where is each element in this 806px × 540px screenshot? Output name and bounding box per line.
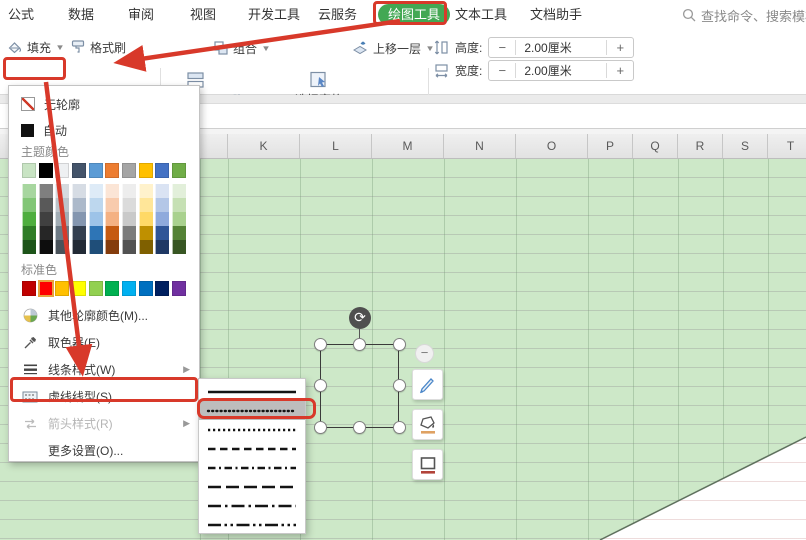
color-swatch[interactable] — [55, 198, 69, 212]
color-swatch[interactable] — [72, 281, 86, 296]
color-swatch[interactable] — [172, 281, 186, 296]
grid-column-line — [633, 159, 634, 540]
menu-item-arrow-style: 箭头样式(R)▶ — [9, 410, 199, 437]
menu-item-no-outline[interactable]: 无轮廓 — [9, 91, 199, 117]
menu-item-label: 取色器(E) — [48, 334, 100, 351]
tab-review[interactable]: 审阅 — [128, 0, 154, 30]
color-swatch[interactable] — [89, 212, 103, 226]
color-swatch[interactable] — [155, 212, 169, 226]
format-painter-icon — [70, 39, 86, 55]
format-painter-button[interactable]: 格式刷 — [70, 37, 126, 57]
tab-data[interactable]: 数据 — [68, 0, 94, 30]
column-header-N[interactable]: N — [444, 134, 516, 158]
height-increment-button[interactable]: + — [606, 40, 633, 55]
color-swatch[interactable] — [122, 281, 136, 296]
color-swatch[interactable] — [22, 163, 36, 178]
width-decrement-button[interactable]: − — [489, 63, 516, 78]
dashed-rect-icon — [21, 391, 39, 403]
width-increment-button[interactable]: + — [606, 63, 633, 78]
color-swatch[interactable] — [105, 163, 119, 178]
column-header-M[interactable]: M — [372, 134, 444, 158]
menu-item-more-outline-colors[interactable]: 其他轮廓颜色(M)... — [9, 302, 199, 329]
brush-icon — [417, 374, 439, 396]
color-swatch[interactable] — [155, 281, 169, 296]
chevron-down-icon: ▼ — [261, 44, 271, 53]
selection-pane-icon — [308, 71, 330, 89]
color-swatch[interactable] — [172, 198, 186, 212]
color-swatch[interactable] — [139, 184, 153, 198]
dash-style-round-dot[interactable] — [199, 401, 305, 420]
color-swatch[interactable] — [122, 163, 136, 178]
tab-cloud-service[interactable]: 云服务 — [318, 0, 357, 30]
bring-forward-button[interactable]: 上移一层▼ — [352, 38, 434, 58]
quick-style-brush-button[interactable] — [412, 369, 443, 400]
color-swatch[interactable] — [89, 163, 103, 178]
color-swatch[interactable] — [55, 184, 69, 198]
color-swatch[interactable] — [172, 163, 186, 178]
standard-colors-row — [9, 281, 199, 296]
color-swatch[interactable] — [122, 184, 136, 198]
column-header-Q[interactable]: Q — [633, 134, 678, 158]
menu-item-label: 其他轮廓颜色(M)... — [48, 307, 148, 324]
arrows-icon — [21, 418, 39, 430]
selection-handle[interactable] — [393, 421, 406, 434]
color-swatch[interactable] — [55, 212, 69, 226]
submenu-arrow-icon: ▶ — [183, 418, 190, 429]
color-swatch[interactable] — [39, 163, 53, 178]
dash-style-long-dash-dot-dot[interactable] — [199, 515, 305, 534]
color-swatch[interactable] — [22, 212, 36, 226]
color-swatch[interactable] — [155, 184, 169, 198]
color-swatch[interactable] — [172, 184, 186, 198]
grid-column-line — [516, 159, 517, 540]
color-swatch[interactable] — [72, 226, 86, 240]
width-label: 宽度: — [455, 62, 482, 79]
dash-style-long-dash-dot[interactable] — [199, 496, 305, 515]
color-swatch[interactable] — [155, 226, 169, 240]
submenu-arrow-icon: ▶ — [183, 364, 190, 375]
column-header-K[interactable]: K — [228, 134, 300, 158]
quick-outline-button[interactable] — [412, 449, 443, 480]
ribbon-tab-bar: 公式数据审阅视图开发工具云服务绘图工具文本工具文档助手 查找命令、搜索模板 — [0, 0, 806, 30]
column-header-R[interactable]: R — [678, 134, 723, 158]
color-swatch[interactable] — [39, 198, 53, 212]
color-swatch[interactable] — [139, 212, 153, 226]
color-swatch[interactable] — [139, 226, 153, 240]
color-swatch[interactable] — [105, 240, 119, 254]
dash-style-submenu — [198, 378, 306, 534]
shape-outline-icon — [417, 454, 439, 476]
height-value[interactable]: 2.00厘米 — [516, 39, 606, 56]
search-placeholder: 查找命令、搜索模板 — [701, 6, 806, 25]
theme-colors-tint-grid — [9, 184, 199, 254]
color-swatch[interactable] — [22, 240, 36, 254]
color-swatch[interactable] — [22, 198, 36, 212]
outline-dropdown-menu: 无轮廓 自动 主题颜色 标准色 其他轮廓颜色(M)...取色器(E)线条样式(W… — [8, 85, 200, 462]
color-wheel-icon — [21, 308, 39, 323]
dash-style-long-dash[interactable] — [199, 477, 305, 496]
grid-column-line — [588, 159, 589, 540]
automatic-color-icon — [21, 124, 34, 137]
color-swatch[interactable] — [39, 212, 53, 226]
group-button[interactable]: 组合▼ — [213, 38, 270, 58]
color-swatch[interactable] — [105, 281, 119, 296]
height-label: 高度: — [455, 39, 482, 56]
theme-colors-base-row — [9, 163, 199, 178]
color-swatch[interactable] — [139, 163, 153, 178]
menu-item-label: 线条样式(W) — [48, 361, 115, 378]
color-swatch[interactable] — [39, 226, 53, 240]
color-swatch[interactable] — [172, 226, 186, 240]
color-swatch[interactable] — [172, 212, 186, 226]
tab-formulas[interactable]: 公式 — [8, 0, 34, 30]
menu-item-more-settings[interactable]: 更多设置(O)... — [9, 437, 199, 464]
color-swatch[interactable] — [89, 226, 103, 240]
selection-handle[interactable] — [314, 421, 327, 434]
grid-column-line — [444, 159, 445, 540]
color-swatch[interactable] — [105, 198, 119, 212]
line-weights-icon — [21, 363, 39, 376]
color-swatch[interactable] — [122, 198, 136, 212]
selection-handle[interactable] — [393, 379, 406, 392]
chevron-down-icon: ▼ — [55, 43, 65, 52]
width-value[interactable]: 2.00厘米 — [516, 62, 606, 79]
menu-item-line-style[interactable]: 线条样式(W)▶ — [9, 356, 199, 383]
command-search[interactable]: 查找命令、搜索模板 — [682, 0, 806, 30]
color-swatch[interactable] — [55, 281, 69, 296]
color-swatch[interactable] — [172, 240, 186, 254]
bring-forward-icon — [352, 40, 369, 56]
tab-doc-assistant[interactable]: 文档助手 — [530, 0, 582, 30]
color-swatch[interactable] — [139, 240, 153, 254]
color-swatch[interactable] — [89, 198, 103, 212]
color-swatch[interactable] — [72, 212, 86, 226]
color-swatch[interactable] — [139, 281, 153, 296]
color-swatch[interactable] — [155, 163, 169, 178]
color-swatch[interactable] — [105, 226, 119, 240]
color-swatch[interactable] — [105, 212, 119, 226]
rotate-icon: ⟳ — [354, 309, 366, 325]
color-swatch[interactable] — [89, 240, 103, 254]
width-icon — [434, 62, 449, 79]
column-header-partial[interactable] — [200, 134, 228, 158]
selection-handle[interactable] — [393, 338, 406, 351]
search-icon — [682, 8, 696, 22]
fill-button[interactable]: 填充▼ — [6, 37, 64, 57]
selection-handle[interactable] — [314, 338, 327, 351]
height-stepper: − 2.00厘米 + — [488, 37, 634, 58]
tab-dev-tools[interactable]: 开发工具 — [248, 0, 300, 30]
width-field-row: 宽度: − 2.00厘米 + — [434, 60, 634, 81]
color-swatch[interactable] — [22, 226, 36, 240]
theme-colors-label: 主题颜色 — [9, 143, 199, 161]
color-swatch[interactable] — [122, 240, 136, 254]
color-swatch[interactable] — [39, 240, 53, 254]
column-header-O[interactable]: O — [516, 134, 588, 158]
dash-style-solid[interactable] — [199, 382, 305, 401]
column-header-L[interactable]: L — [300, 134, 372, 158]
menu-item-dash-style[interactable]: 虚线线型(S) — [9, 383, 199, 410]
shape-fill-icon — [417, 414, 439, 436]
dash-style-dash[interactable] — [199, 439, 305, 458]
menu-item-label: 虚线线型(S) — [48, 388, 112, 405]
selection-handle[interactable] — [353, 421, 366, 434]
color-swatch[interactable] — [22, 281, 36, 296]
column-header-S[interactable]: S — [723, 134, 768, 158]
color-swatch[interactable] — [39, 184, 53, 198]
fill-bucket-icon — [6, 39, 23, 55]
grid-column-line — [678, 159, 679, 540]
menu-item-label: 更多设置(O)... — [48, 442, 123, 459]
height-icon — [434, 39, 449, 56]
no-outline-icon — [21, 97, 35, 111]
height-field-row: 高度: − 2.00厘米 + — [434, 37, 634, 58]
width-stepper: − 2.00厘米 + — [488, 60, 634, 81]
color-swatch[interactable] — [72, 184, 86, 198]
tab-drawing-tools[interactable]: 绘图工具 — [378, 4, 450, 25]
height-decrement-button[interactable]: − — [489, 40, 516, 55]
dash-style-dash-dot[interactable] — [199, 458, 305, 477]
menu-item-eyedropper[interactable]: 取色器(E) — [9, 329, 199, 356]
color-swatch[interactable] — [22, 184, 36, 198]
color-swatch[interactable] — [72, 240, 86, 254]
group-icon — [213, 40, 229, 56]
quick-fill-button[interactable] — [412, 409, 443, 440]
color-swatch[interactable] — [155, 240, 169, 254]
color-swatch[interactable] — [122, 226, 136, 240]
color-swatch[interactable] — [72, 198, 86, 212]
selection-handle[interactable] — [314, 379, 327, 392]
color-swatch[interactable] — [55, 240, 69, 254]
standard-colors-label: 标准色 — [9, 261, 199, 279]
color-swatch[interactable] — [55, 163, 69, 178]
selection-handle[interactable] — [353, 338, 366, 351]
color-swatch[interactable] — [39, 281, 53, 296]
color-swatch[interactable] — [105, 184, 119, 198]
color-swatch[interactable] — [89, 184, 103, 198]
collapse-quick-tools-button[interactable]: − — [415, 344, 434, 363]
tab-view[interactable]: 视图 — [190, 0, 216, 30]
selected-square-shape[interactable] — [320, 344, 399, 428]
color-swatch[interactable] — [139, 198, 153, 212]
color-swatch[interactable] — [122, 212, 136, 226]
color-swatch[interactable] — [72, 163, 86, 178]
tab-text-tools[interactable]: 文本工具 — [455, 0, 507, 30]
menu-item-label: 箭头样式(R) — [48, 415, 113, 432]
column-header-P[interactable]: P — [588, 134, 633, 158]
color-swatch[interactable] — [55, 226, 69, 240]
color-swatch[interactable] — [155, 198, 169, 212]
minus-icon: − — [421, 345, 429, 360]
rotate-handle[interactable]: ⟳ — [349, 307, 371, 329]
column-header-T[interactable]: T — [768, 134, 806, 158]
color-swatch[interactable] — [89, 281, 103, 296]
menu-item-automatic[interactable]: 自动 — [9, 117, 199, 143]
eyedropper-icon — [21, 336, 39, 350]
dash-style-square-dot[interactable] — [199, 420, 305, 439]
